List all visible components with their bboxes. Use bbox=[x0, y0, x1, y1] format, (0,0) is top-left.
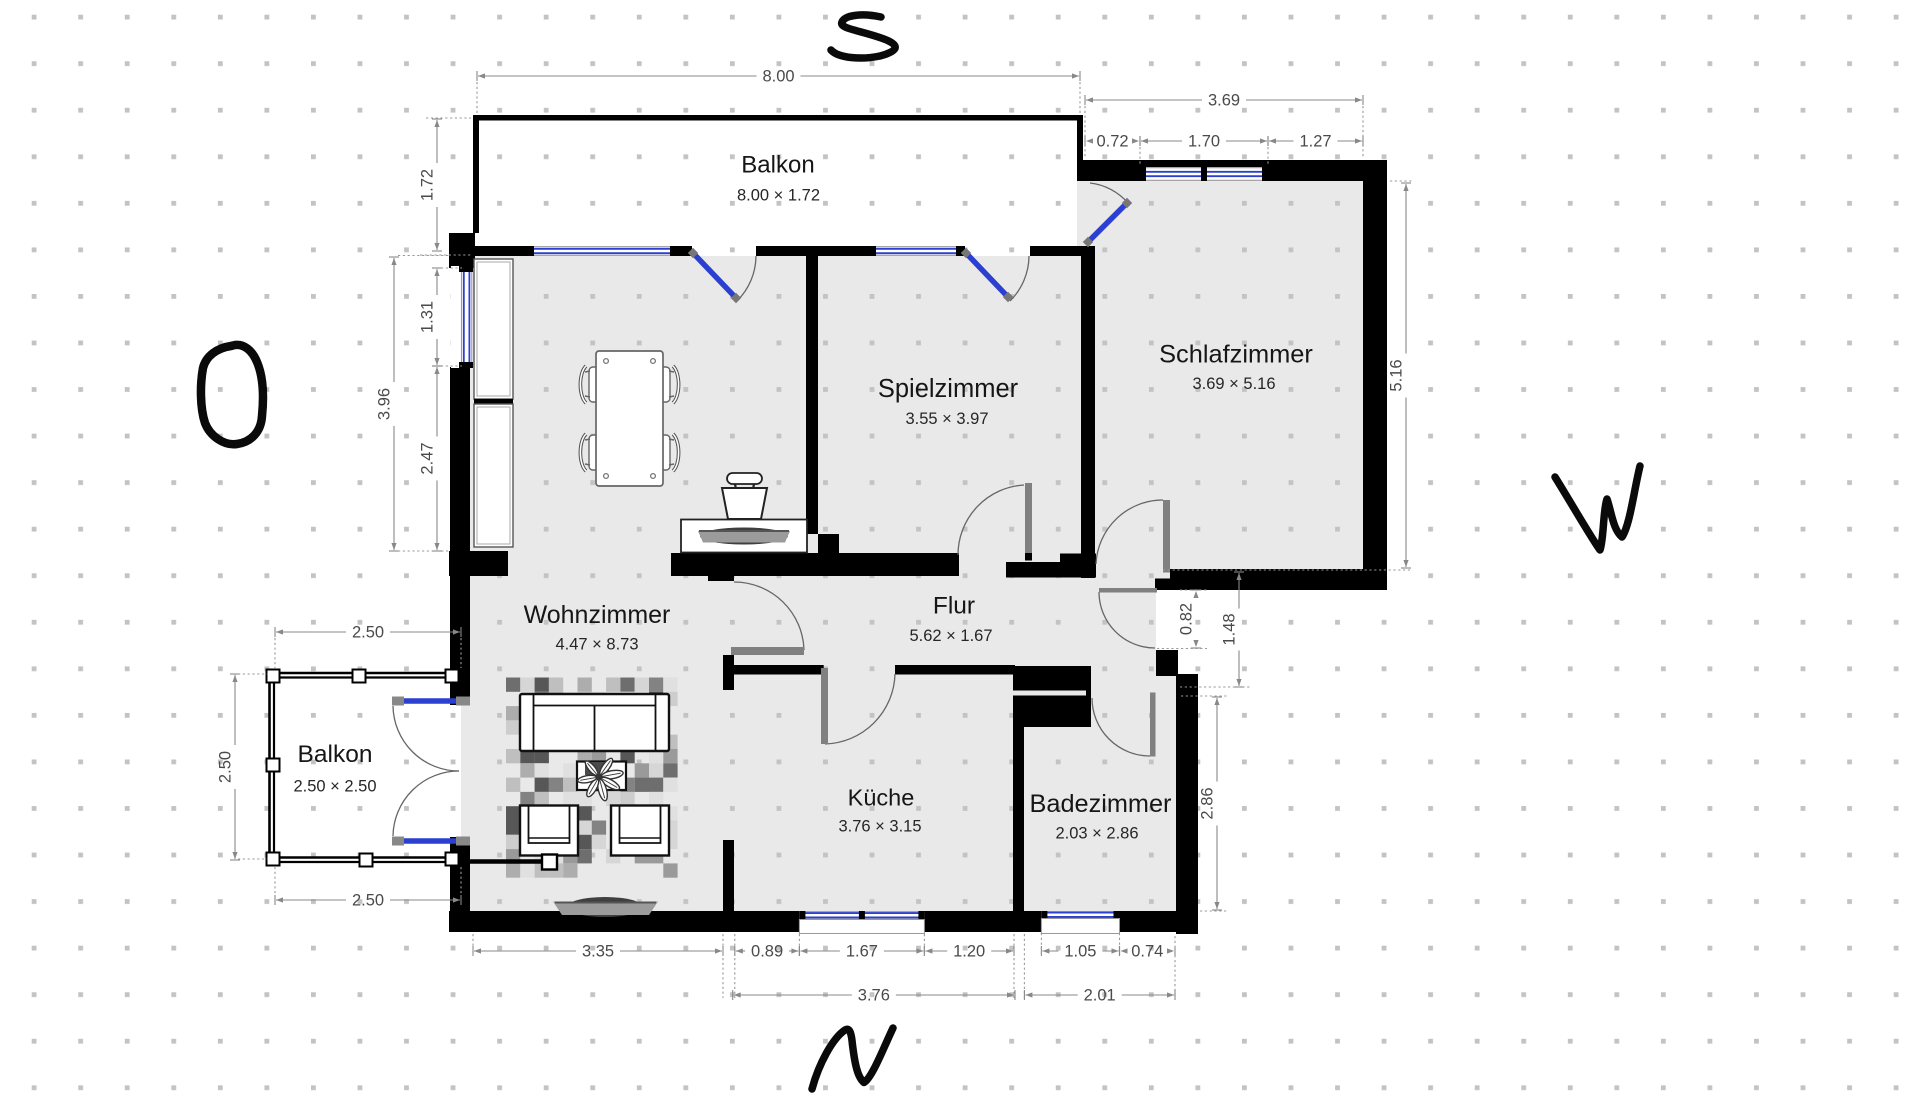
svg-text:1.05: 1.05 bbox=[1064, 943, 1096, 961]
svg-text:1.48: 1.48 bbox=[1221, 613, 1239, 645]
svg-text:Badezimmer: Badezimmer bbox=[1030, 790, 1172, 818]
svg-text:2.50: 2.50 bbox=[352, 624, 384, 642]
svg-text:0.74: 0.74 bbox=[1131, 943, 1163, 961]
svg-text:3.55 × 3.97: 3.55 × 3.97 bbox=[905, 410, 988, 428]
svg-text:0.72: 0.72 bbox=[1096, 133, 1128, 151]
svg-text:3.69 × 5.16: 3.69 × 5.16 bbox=[1192, 375, 1275, 393]
svg-text:1.20: 1.20 bbox=[953, 943, 985, 961]
svg-text:3.96: 3.96 bbox=[376, 388, 394, 420]
svg-text:2.50: 2.50 bbox=[352, 892, 384, 910]
svg-text:1.31: 1.31 bbox=[419, 301, 437, 333]
svg-text:2.01: 2.01 bbox=[1084, 987, 1116, 1005]
svg-text:1.27: 1.27 bbox=[1299, 133, 1331, 151]
svg-text:1.72: 1.72 bbox=[419, 169, 437, 201]
svg-text:1.70: 1.70 bbox=[1188, 133, 1220, 151]
svg-text:8.00: 8.00 bbox=[762, 68, 794, 86]
svg-text:8.00 × 1.72: 8.00 × 1.72 bbox=[737, 187, 820, 205]
svg-text:Schlafzimmer: Schlafzimmer bbox=[1159, 341, 1313, 369]
svg-text:Spielzimmer: Spielzimmer bbox=[878, 375, 1019, 403]
svg-text:3.76 × 3.15: 3.76 × 3.15 bbox=[838, 818, 921, 836]
svg-text:Küche: Küche bbox=[848, 785, 915, 811]
svg-text:3.69: 3.69 bbox=[1208, 92, 1240, 110]
svg-text:2.03 × 2.86: 2.03 × 2.86 bbox=[1055, 825, 1138, 843]
svg-text:Balkon: Balkon bbox=[298, 741, 373, 768]
svg-text:Flur: Flur bbox=[933, 593, 975, 620]
svg-text:2.47: 2.47 bbox=[419, 442, 437, 474]
svg-text:Wohnzimmer: Wohnzimmer bbox=[524, 601, 671, 629]
svg-text:5.62 × 1.67: 5.62 × 1.67 bbox=[909, 627, 992, 645]
svg-text:0.82: 0.82 bbox=[1178, 603, 1196, 635]
svg-text:Balkon: Balkon bbox=[741, 152, 814, 179]
svg-text:0.89: 0.89 bbox=[751, 943, 783, 961]
svg-text:1.67: 1.67 bbox=[846, 943, 878, 961]
svg-text:2.50: 2.50 bbox=[217, 751, 235, 783]
svg-text:3.76: 3.76 bbox=[858, 987, 890, 1005]
svg-text:2.86: 2.86 bbox=[1199, 787, 1217, 819]
svg-text:3.35: 3.35 bbox=[582, 943, 614, 961]
svg-text:2.50 × 2.50: 2.50 × 2.50 bbox=[293, 778, 376, 796]
svg-text:4.47 × 8.73: 4.47 × 8.73 bbox=[555, 636, 638, 654]
svg-text:5.16: 5.16 bbox=[1388, 359, 1406, 391]
